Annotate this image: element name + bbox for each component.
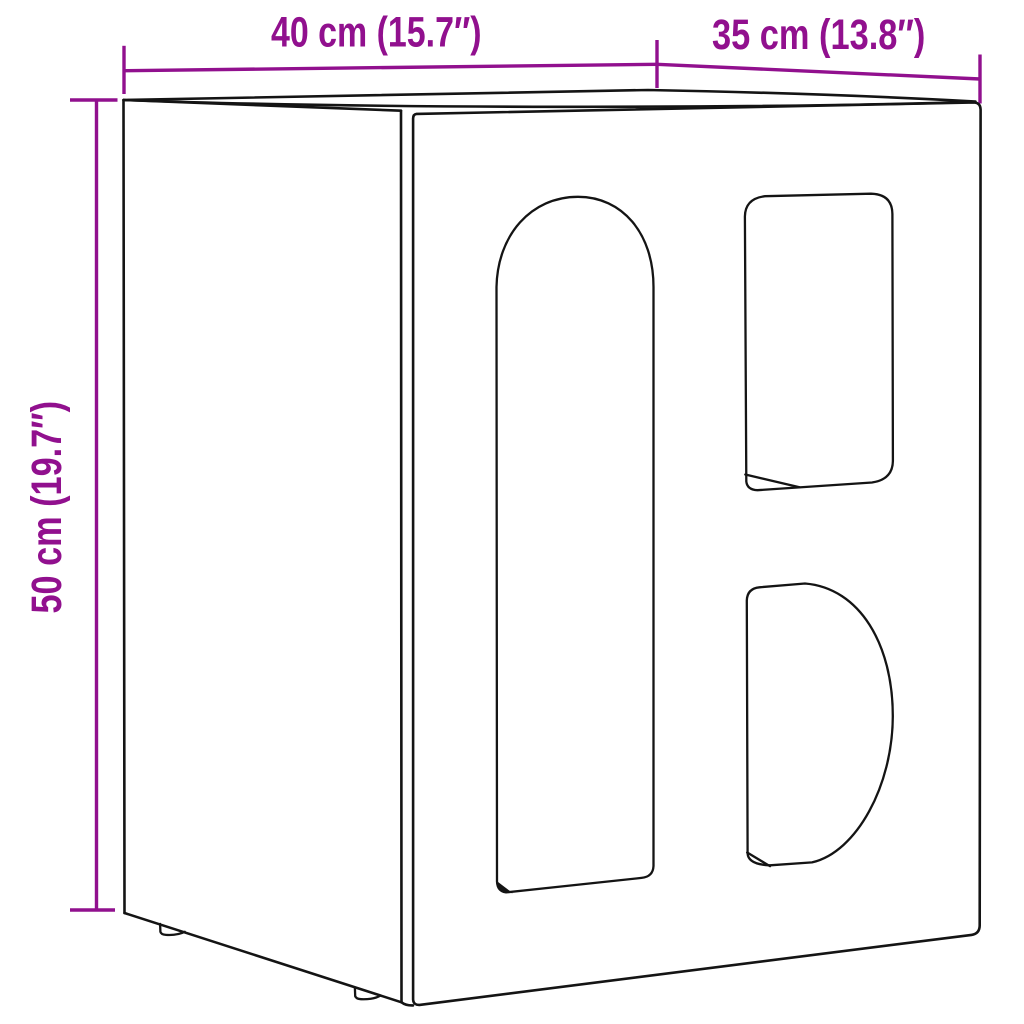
svg-text:35 cm (13.8″): 35 cm (13.8″) bbox=[712, 12, 925, 59]
svg-text:40 cm (15.7″): 40 cm (15.7″) bbox=[271, 10, 482, 57]
svg-text:50 cm (19.7″): 50 cm (19.7″) bbox=[24, 401, 71, 614]
